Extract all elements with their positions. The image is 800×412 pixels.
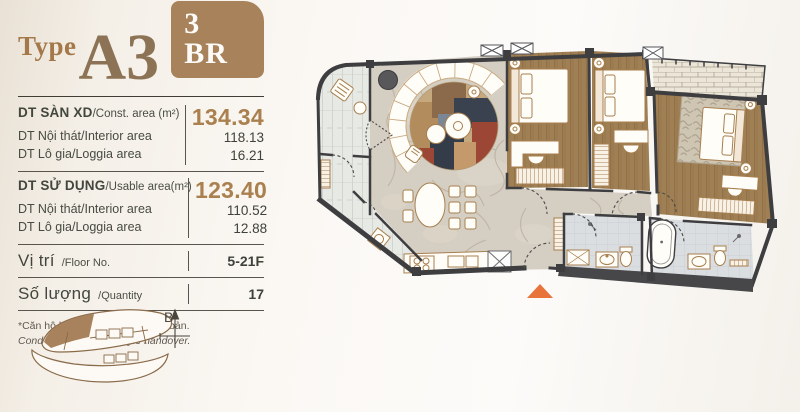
nightstand (594, 124, 605, 135)
coffee-table-small (427, 125, 446, 144)
living-room-furniture (379, 60, 505, 173)
group2-label-en: /Usable area(m²) (105, 181, 191, 193)
area-group-construction: DT SÀN XD/Const. area (m²) DT Nội thát/I… (18, 105, 264, 165)
toilet (620, 247, 632, 267)
group2-row1-label-en: /Interior area (81, 202, 152, 216)
divider (18, 277, 264, 278)
bed (511, 69, 568, 123)
unit-header: Type A3 3 BR (18, 8, 264, 86)
window-marker-icon (511, 43, 533, 54)
group2-row2-label-en: /Loggia area (72, 220, 142, 234)
group1-row1-value: 118.13 (224, 129, 264, 147)
floor-row: Vị trí/Floor No. 5-21F (18, 251, 264, 271)
group2-row1-value: 110.52 (227, 202, 267, 220)
window-marker-icon (481, 45, 503, 56)
divider (18, 244, 264, 245)
towel-rail (730, 260, 748, 266)
info-panel: Type A3 3 BR DT SÀN XD/Const. area (m²) … (18, 8, 264, 349)
group1-row2-label-en: /Loggia area (72, 147, 142, 161)
header-divider (18, 96, 264, 97)
group1-row2-label-vn: DT Lô gia (18, 147, 72, 161)
group2-row1-label-vn: DT Nội thát (18, 202, 81, 216)
type-label: Type (18, 33, 77, 86)
floor-value: 5-21F (227, 253, 264, 269)
entrance-arrow-icon (527, 284, 553, 298)
footprint-lower-slab (32, 350, 168, 382)
nightstand (740, 163, 752, 175)
desk (614, 130, 648, 143)
nightstand (594, 58, 605, 69)
group1-value: 134.34 (192, 105, 264, 129)
group2-value: 123.40 (195, 178, 267, 202)
window-marker-icon (643, 47, 663, 59)
sink (688, 254, 710, 269)
group1-row1-label-en: /Interior area (81, 129, 152, 143)
area-group-usable: DT SỬ DỤNG/Usable area(m²) DT Nội thát/I… (18, 178, 264, 238)
floor-label-en: /Floor No. (62, 257, 110, 269)
nightstand (510, 124, 521, 135)
wardrobe (594, 144, 609, 186)
divider (18, 171, 264, 172)
utility-shelf (321, 160, 330, 188)
group1-row2-value: 16.21 (230, 147, 264, 165)
floor-label-vn: Vị trí (18, 251, 55, 271)
quantity-value: 17 (248, 286, 264, 302)
toilet (714, 246, 726, 266)
sink (596, 252, 618, 267)
column (379, 71, 398, 90)
side-table (468, 86, 480, 98)
group2-row2-label-vn: DT Lô gia (18, 220, 72, 234)
group2-row2-value: 12.88 (233, 220, 267, 238)
vanity (567, 250, 589, 265)
group1-label-vn: DT SÀN XD (18, 105, 93, 120)
balcony-table (354, 102, 366, 114)
building-footprint-map: B (12, 300, 212, 405)
linen-closet (554, 218, 564, 250)
group2-label-vn: DT SỬ DỤNG (18, 178, 105, 193)
group1-row1-label-vn: DT Nội thát (18, 129, 81, 143)
dining-table (415, 183, 445, 227)
floor-plan (298, 14, 786, 308)
bedrooms-badge: 3 BR (171, 1, 264, 78)
unit-code: A3 (79, 30, 160, 86)
group1-label-en: /Const. area (m²) (93, 108, 180, 120)
wardrobe (516, 168, 564, 184)
